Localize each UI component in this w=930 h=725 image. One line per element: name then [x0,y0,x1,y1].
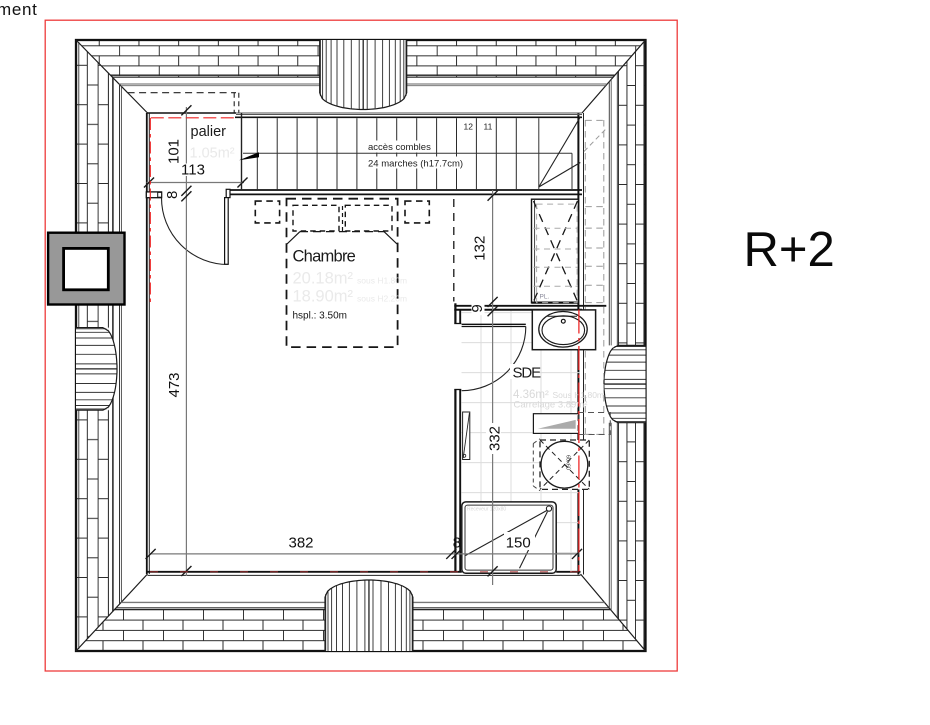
svg-text:palier: palier [191,124,227,140]
svg-text:Chambre: Chambre [293,248,356,266]
svg-text:12: 12 [464,122,474,132]
svg-text:18.90m²: 18.90m² [293,288,354,306]
svg-text:24 marches (h17.7cm): 24 marches (h17.7cm) [368,159,463,170]
svg-text:R+2: R+2 [744,223,835,277]
svg-text:8: 8 [453,534,461,551]
svg-text:Receveur 120x80: Receveur 120x80 [467,507,506,513]
svg-text:hspl.: 3.50m: hspl.: 3.50m [293,311,347,322]
svg-text:sous H2.20m: sous H2.20m [357,294,407,304]
svg-text:9: 9 [469,304,486,312]
svg-text:11: 11 [484,122,493,132]
svg-text:113: 113 [181,162,205,179]
svg-text:20.18m²: 20.18m² [293,270,354,288]
svg-text:sous H1.80m: sous H1.80m [357,276,407,286]
svg-text:60x60: 60x60 [565,455,571,470]
svg-text:Sous H1.80m: Sous H1.80m [553,390,605,400]
svg-text:8: 8 [164,191,181,199]
svg-text:332: 332 [487,426,504,451]
svg-text:PL.: PL. [540,294,550,301]
svg-text:473: 473 [166,372,183,397]
svg-text:Carrelage 3.89m²: Carrelage 3.89m² [514,400,588,411]
svg-text:SDE: SDE [513,365,542,382]
svg-text:382: 382 [289,534,314,551]
svg-text:132: 132 [472,236,489,261]
svg-text:1.05m²: 1.05m² [190,146,235,162]
svg-text:accès combles: accès combles [368,142,431,153]
svg-text:150: 150 [506,535,531,552]
svg-text:101: 101 [166,139,183,164]
svg-text:ment: ment [0,0,38,19]
